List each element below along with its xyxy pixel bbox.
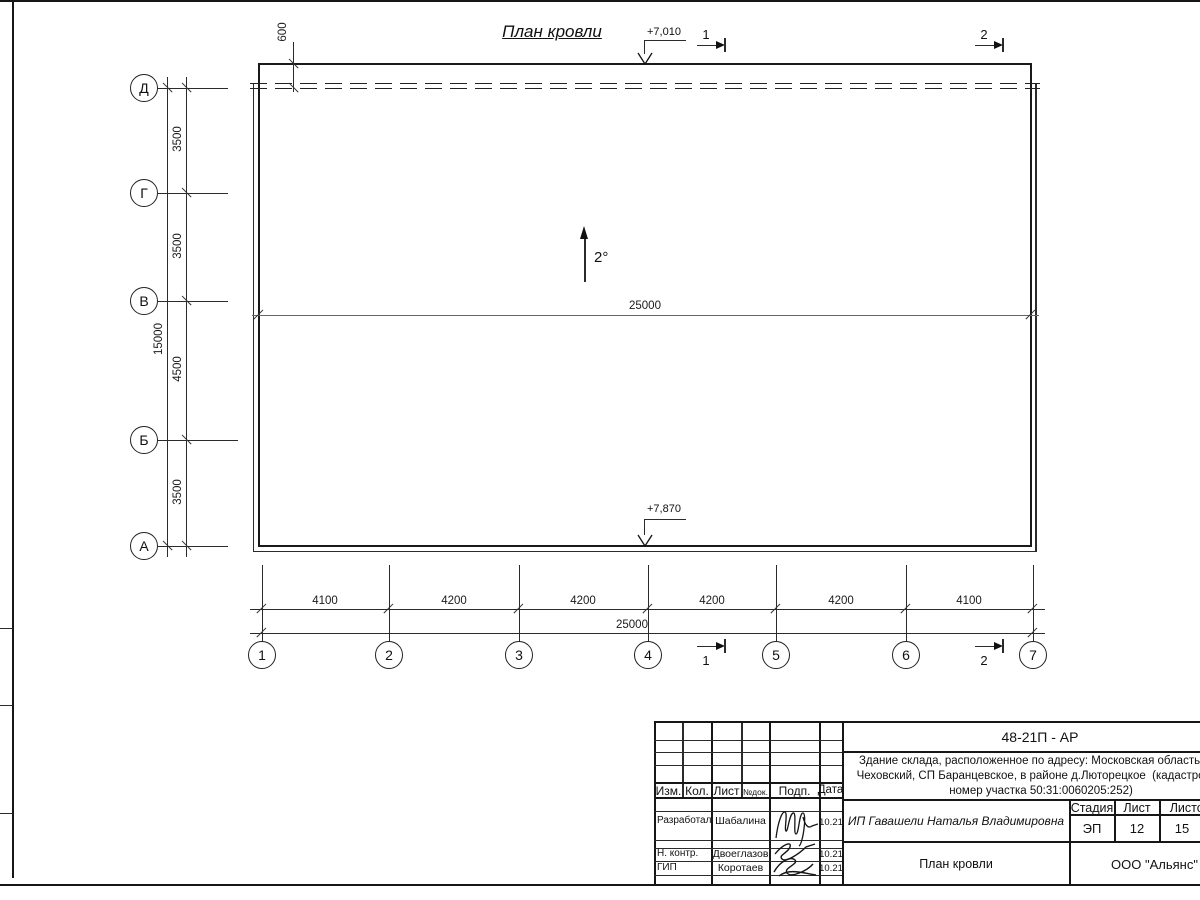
client-name: ИП Гавашели Наталья Владимировна [842,814,1070,828]
axis-line [158,301,228,302]
roof-parapet-dashed-line [250,88,1040,89]
ridge-dim-label: 25000 [613,300,677,312]
elevation-bottom-stem [644,519,645,535]
elevation-bottom-leader [644,519,686,520]
section-mark-label: 1 [698,27,714,42]
frame-bottom-line [0,884,1200,886]
section-mark-bar [1002,639,1004,653]
titleblock-line [654,765,842,766]
section-mark-label: 2 [976,653,992,668]
company-name: ООО "Альянс" [1069,857,1200,872]
axis-row-label: А [139,538,148,554]
role-date: 10.21 [819,863,843,874]
sheets-value: 15 [1159,821,1200,836]
axis-col-circle: 3 [505,641,533,669]
slope-arrow-icon [580,226,588,239]
axis-line [158,193,228,194]
axis-row-label: Д [139,80,148,96]
dim-label-total: 25000 [600,619,664,631]
dim-label: 4200 [809,595,873,607]
dim-label-total: 15000 [153,307,165,371]
slope-label: 2° [594,249,608,266]
dim-label: 4100 [293,595,357,607]
dim-label: 4200 [422,595,486,607]
role-date: 10.21 [819,849,843,860]
titleblock-line [654,721,1200,723]
stage-header: Стадия [1069,801,1115,815]
axis-col-label: 5 [772,647,780,663]
axis-row-label: Г [140,185,148,201]
elevation-bottom-label: +7,870 [647,503,681,515]
project-description-line: Чеховский, СП Баранцевское, в районе д.Л… [845,770,1200,782]
axis-row-circle: Г [130,179,158,207]
ridge-line [252,315,1039,316]
axis-col-circle: 7 [1019,641,1047,669]
role-label: Разработал [657,815,711,826]
frame-left-line [12,0,14,878]
dim-label: 3500 [172,107,184,171]
sheet-value: 12 [1114,821,1160,836]
titleblock-line [654,722,656,884]
page-title: План кровли [462,22,642,42]
role-date: 10.21 [819,817,843,828]
dim-line-600 [293,42,294,92]
dim-line-left-segments [186,77,187,557]
titleblock-col-ndok: №док. [741,787,770,797]
down-arrow-icon [637,52,653,65]
section-mark-label: 1 [698,653,714,668]
dim-label: 4100 [937,595,1001,607]
titleblock-line [654,740,842,741]
doc-number: 48-21П - АР [842,729,1200,745]
section-mark-bar [1002,38,1004,52]
sheets-header: Листов [1159,801,1200,815]
signature-icon [769,840,821,880]
axis-col-circle: 1 [248,641,276,669]
sheet-header: Лист [1114,801,1160,815]
role-name: Шабалина [711,815,770,827]
axis-row-label: Б [139,432,148,448]
axis-col-label: 3 [515,647,523,663]
axis-col-circle: 4 [634,641,662,669]
titleblock-col-data: Дата [817,784,844,796]
axis-row-circle: Д [130,74,158,102]
titleblock-line [842,751,1200,753]
section-mark-bar [724,639,726,653]
roof-wall-outer-bottom [253,551,1037,553]
frame-fold-mark [0,813,13,814]
titleblock-col-izm: Изм. [654,784,683,798]
section-mark-label: 2 [976,27,992,42]
axis-col-circle: 6 [892,641,920,669]
axis-line [158,440,238,441]
elevation-top-label: +7,010 [647,26,681,38]
project-description-line: Здание склада, расположенное по адресу: … [845,755,1200,767]
titleblock-col-podp: Подп. [769,784,820,798]
axis-col-circle: 2 [375,641,403,669]
role-name: Коротаев [711,862,770,874]
elevation-top-leader [644,40,686,41]
role-name: Двоеглазов [711,848,770,860]
stage-value: ЭП [1069,821,1115,836]
dim-label: 4200 [551,595,615,607]
project-description-line: номер участка 50:31:0060205:252) [845,785,1200,797]
axis-col-label: 1 [258,647,266,663]
section-mark-bar [724,38,726,52]
axis-line [389,565,390,642]
role-label: Н. контр. [657,848,711,859]
roof-parapet-dashed-line [250,83,1040,84]
dim-label-600: 600 [277,0,289,64]
axis-row-circle: А [130,532,158,560]
frame-top-line [0,0,1200,2]
titleblock-col-list: Лист [711,784,742,798]
axis-col-label: 6 [902,647,910,663]
dim-label: 3500 [172,460,184,524]
titleblock-line [654,752,842,753]
axis-col-circle: 5 [762,641,790,669]
slope-arrow-stem [584,237,585,282]
axis-row-label: В [139,293,148,309]
axis-line [776,565,777,642]
titleblock-col-kol: Кол. [682,784,712,798]
axis-row-circle: Б [130,426,158,454]
dim-label: 3500 [172,214,184,278]
frame-fold-mark [0,705,13,706]
role-label: ГИП [657,862,711,873]
dim-label: 4500 [172,337,184,401]
roof-wall-outer-right [1035,84,1037,552]
down-arrow-icon [637,534,653,547]
dim-line-left-total [167,77,168,557]
stamp-sheet-title: План кровли [842,857,1070,871]
titleblock-line [842,841,1200,843]
axis-line [906,565,907,642]
dim-line-bottom-total [250,633,1045,634]
axis-line [519,565,520,642]
axis-col-label: 4 [644,647,652,663]
dim-label: 4200 [680,595,744,607]
axis-col-label: 7 [1029,647,1037,663]
frame-fold-mark [0,628,13,629]
axis-col-label: 2 [385,647,393,663]
drawing-sheet: План кровли 25000 2° +7,010 +7,870 1 2 1… [0,0,1200,900]
